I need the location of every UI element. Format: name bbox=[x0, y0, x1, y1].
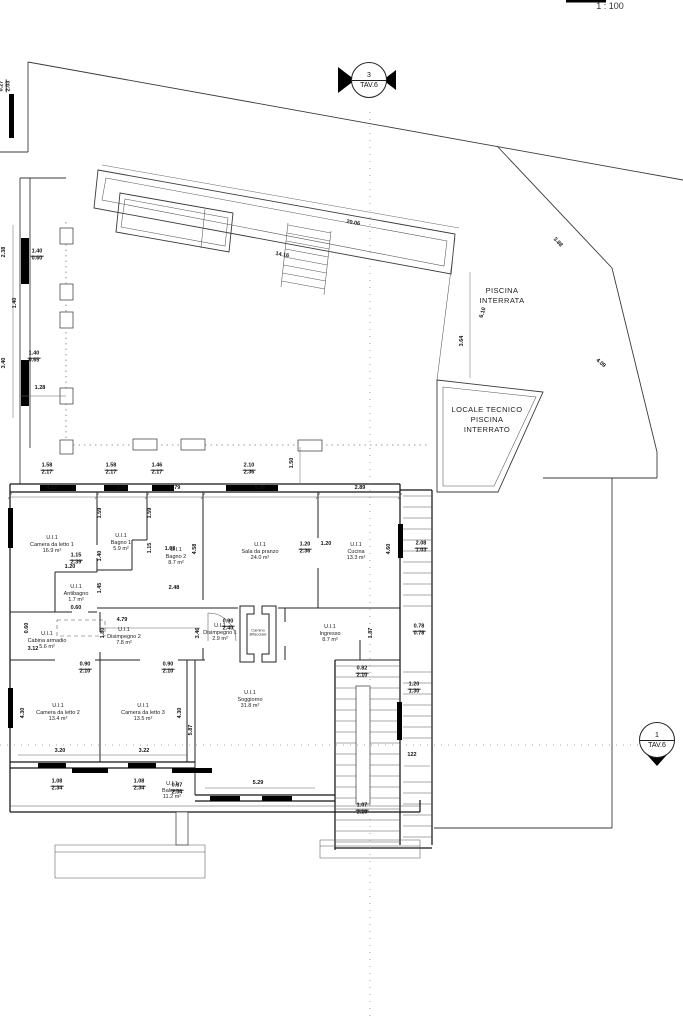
dimension-label: 1.400.65 bbox=[28, 352, 41, 365]
dimension-label: 2.89 bbox=[355, 486, 366, 492]
dimension-label: 3.20 bbox=[55, 749, 66, 755]
dimension-label: 1.20 bbox=[321, 542, 332, 548]
dimension-label: 1.08 bbox=[165, 547, 176, 553]
room-label-soggiorno: U.I.1 Soggiorno 31.8 m² bbox=[237, 690, 262, 710]
floor-plan-page: 1 : 100 3 TAV.6 1 TAV.6 PISCINA INTERRAT… bbox=[0, 0, 683, 1024]
dimension-label: 1.462.17 bbox=[151, 464, 164, 477]
dimension-label: 1.59 bbox=[148, 508, 154, 519]
dimension-label: 4.58 bbox=[193, 544, 199, 555]
dimension-label: 2.38 bbox=[2, 247, 8, 258]
dimension-label: 3.12 bbox=[28, 647, 39, 653]
dimension-label: 0.902.40 bbox=[222, 620, 235, 633]
dimension-label: 0.902.10 bbox=[162, 663, 175, 676]
dimension-label: 5.87 bbox=[189, 725, 195, 736]
section-marker-circle: 1 TAV.6 bbox=[639, 722, 675, 758]
dimension-label: 3.64 bbox=[460, 336, 466, 347]
dimension-label: 0.272.03 bbox=[0, 80, 12, 93]
section-sheet: TAV.6 bbox=[352, 81, 386, 89]
dimension-label: 1.202.36 bbox=[299, 543, 312, 556]
room-label-cucina: U.I.1 Cucina 13.3 m² bbox=[347, 542, 366, 562]
dimension-label: 4.60 bbox=[387, 544, 393, 555]
section-number: 1 bbox=[640, 732, 674, 741]
fireplace-label: Camino Bifacciale bbox=[249, 629, 266, 638]
dimension-label: 5.25 bbox=[255, 486, 266, 492]
dimension-label: 0.822.10 bbox=[356, 667, 369, 680]
room-label-ingresso: U.I.1 Ingresso 8.7 m² bbox=[319, 624, 340, 644]
dimension-label: 0.872.34 bbox=[171, 784, 184, 797]
dimension-label: 2.102.36 bbox=[243, 464, 256, 477]
dimension-label: 0.60 bbox=[71, 606, 82, 612]
scale-label: 1 : 100 bbox=[575, 1, 645, 11]
room-label-camera-da-letto-3: U.I.1 Camera da letto 3 13.5 m² bbox=[121, 703, 165, 723]
dimension-label: 1.152.39 bbox=[70, 554, 83, 567]
dimension-label: 1.201.30 bbox=[408, 683, 421, 696]
dimension-label: 0.780.78 bbox=[413, 625, 426, 638]
dimension-label: 2.48 bbox=[169, 586, 180, 592]
room-label-disimpegno-2: U.I.1 Disimpegno 2 7.8 m² bbox=[107, 627, 141, 647]
section-marker-1: 1 TAV.6 bbox=[639, 722, 675, 766]
dimension-label: 1.28 bbox=[35, 386, 46, 392]
dimension-label: 1.15 bbox=[148, 543, 154, 554]
dimension-label: 1.85 bbox=[117, 486, 128, 492]
dimension-label: 3.46 bbox=[196, 628, 202, 639]
dimension-label: 1.582.17 bbox=[105, 464, 118, 477]
dimension-label: 1.082.34 bbox=[51, 780, 64, 793]
dimension-label: 4.12 bbox=[47, 486, 58, 492]
dimension-label: 0.902.10 bbox=[79, 663, 92, 676]
dimension-label: 4.30 bbox=[178, 708, 184, 719]
dimension-label: 4.79 bbox=[117, 618, 128, 624]
room-label-bagno-1: U.I.1 Bagno 1 5.9 m² bbox=[111, 533, 132, 553]
dimension-label: 4.30 bbox=[21, 708, 27, 719]
room-label-camera-da-letto-2: U.I.1 Camera da letto 2 13.4 m² bbox=[36, 703, 80, 723]
dimension-label: 1.40 bbox=[98, 551, 104, 562]
dimension-label: 1.40 bbox=[13, 298, 19, 309]
section-sheet: TAV.6 bbox=[640, 741, 674, 749]
dimension-label: 1.80 bbox=[101, 628, 107, 639]
dimension-label: 5.29 bbox=[253, 781, 264, 787]
room-label-camera-da-letto-1: U.I.1 Camera da letto 1 16.9 m² bbox=[30, 535, 74, 555]
dimension-label: 1.45 bbox=[98, 583, 104, 594]
dimension-label: 1.082.34 bbox=[133, 780, 146, 793]
dimension-label: 1.072.10 bbox=[356, 804, 369, 817]
dimension-label: 0.60 bbox=[25, 623, 31, 634]
dimension-label: 1.50 bbox=[290, 458, 296, 469]
dimension-label: 1.79 bbox=[170, 486, 181, 492]
section-marker-circle: 3 TAV.6 bbox=[351, 62, 387, 98]
dimension-label: 1.582.17 bbox=[41, 464, 54, 477]
dimension-label: 122 bbox=[407, 753, 416, 759]
dimension-label: 2.081.03 bbox=[415, 542, 428, 555]
section-number: 3 bbox=[352, 72, 386, 81]
room-label-sala-da-pranzo: U.I.1 Sala da pranzo 24.0 m² bbox=[242, 542, 279, 562]
technical-room-label: LOCALE TECNICO PISCINA INTERRATO bbox=[452, 405, 523, 435]
pool-area-label: PISCINA INTERRATA bbox=[480, 286, 525, 306]
dimension-label: 1.59 bbox=[98, 508, 104, 519]
room-label-antibagno: U.I.1 Antibagno 1.7 m² bbox=[64, 584, 89, 604]
dimension-label: 3.40 bbox=[2, 358, 8, 369]
dimension-label: 1.400.60 bbox=[31, 250, 44, 263]
dimension-label: 3.22 bbox=[139, 749, 150, 755]
dimension-label: 1.87 bbox=[369, 628, 375, 639]
section-marker-3: 3 TAV.6 bbox=[338, 62, 396, 98]
